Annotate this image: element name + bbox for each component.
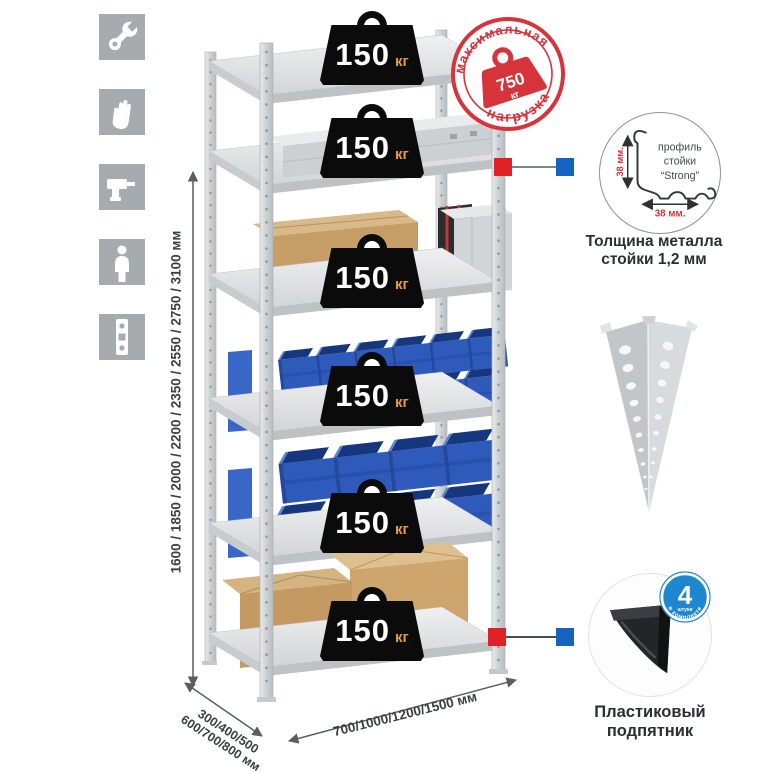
- quantity-badge: 4 штуки в комплекте: [659, 571, 711, 623]
- shelf-load-weight: 150 кг: [320, 248, 424, 308]
- person-icon: [99, 239, 145, 285]
- caption-line: подпятник: [570, 722, 730, 741]
- weight-unit: кг: [395, 276, 409, 293]
- profile-label-3: “Strong”: [661, 170, 700, 182]
- weight-unit: кг: [395, 146, 409, 163]
- weight-value: 150: [335, 378, 390, 414]
- connector-blue-top: [556, 158, 574, 176]
- weight-unit: кг: [395, 53, 409, 70]
- wrench-tile: [99, 14, 145, 60]
- weight-value: 150: [335, 505, 390, 541]
- profile-label-2: стойки: [664, 155, 696, 167]
- corner-post-image: [600, 316, 698, 512]
- drill-tile: [99, 164, 145, 210]
- caption-line: стойки 1,2 мм: [574, 251, 734, 269]
- badge-value: 4: [678, 580, 693, 610]
- level-tile: [99, 314, 145, 360]
- weight-value: 150: [335, 37, 390, 73]
- plastic-foot-caption: Пластиковый подпятник: [570, 703, 730, 742]
- shelf-load-weight: 150 кг: [320, 25, 424, 85]
- badge-note: штуки: [677, 607, 692, 613]
- weight-unit: кг: [395, 394, 409, 411]
- weight-unit: кг: [395, 521, 409, 538]
- level-icon: [99, 314, 145, 360]
- profile-height-dim: 38 мм.: [615, 147, 625, 176]
- caption-line: Пластиковый: [570, 703, 730, 722]
- profile-width-dim: 38 мм.: [655, 209, 686, 220]
- person-tile: [99, 239, 145, 285]
- weight-value: 150: [335, 130, 390, 166]
- weight-value: 150: [335, 260, 390, 296]
- profile-label-1: профиль: [658, 141, 702, 153]
- gloves-icon: [99, 89, 145, 135]
- connector-red-top: [494, 158, 512, 176]
- drill-icon: [99, 164, 145, 210]
- wrench-icon: [99, 14, 145, 60]
- metal-thickness-caption: Толщина металла стойки 1,2 мм: [574, 233, 734, 270]
- weight-unit: кг: [395, 629, 409, 646]
- shelf-load-weight: 150 кг: [320, 118, 424, 178]
- caption-line: Толщина металла: [574, 233, 734, 251]
- weight-value: 150: [335, 613, 390, 649]
- connector-red-bottom: [488, 628, 506, 646]
- shelf-load-weight: 150 кг: [320, 601, 424, 661]
- connector-blue-bottom: [556, 628, 574, 646]
- gloves-tile: [99, 89, 145, 135]
- shelf-load-weight: 150 кг: [320, 366, 424, 426]
- shelf-load-weight: 150 кг: [320, 493, 424, 553]
- post-profile-detail: 38 мм. 38 мм. профиль стойки “Strong”: [599, 112, 721, 234]
- height-dimension-label: 1600 / 1850 / 2000 / 2200 / 2350 / 2550 …: [169, 231, 184, 574]
